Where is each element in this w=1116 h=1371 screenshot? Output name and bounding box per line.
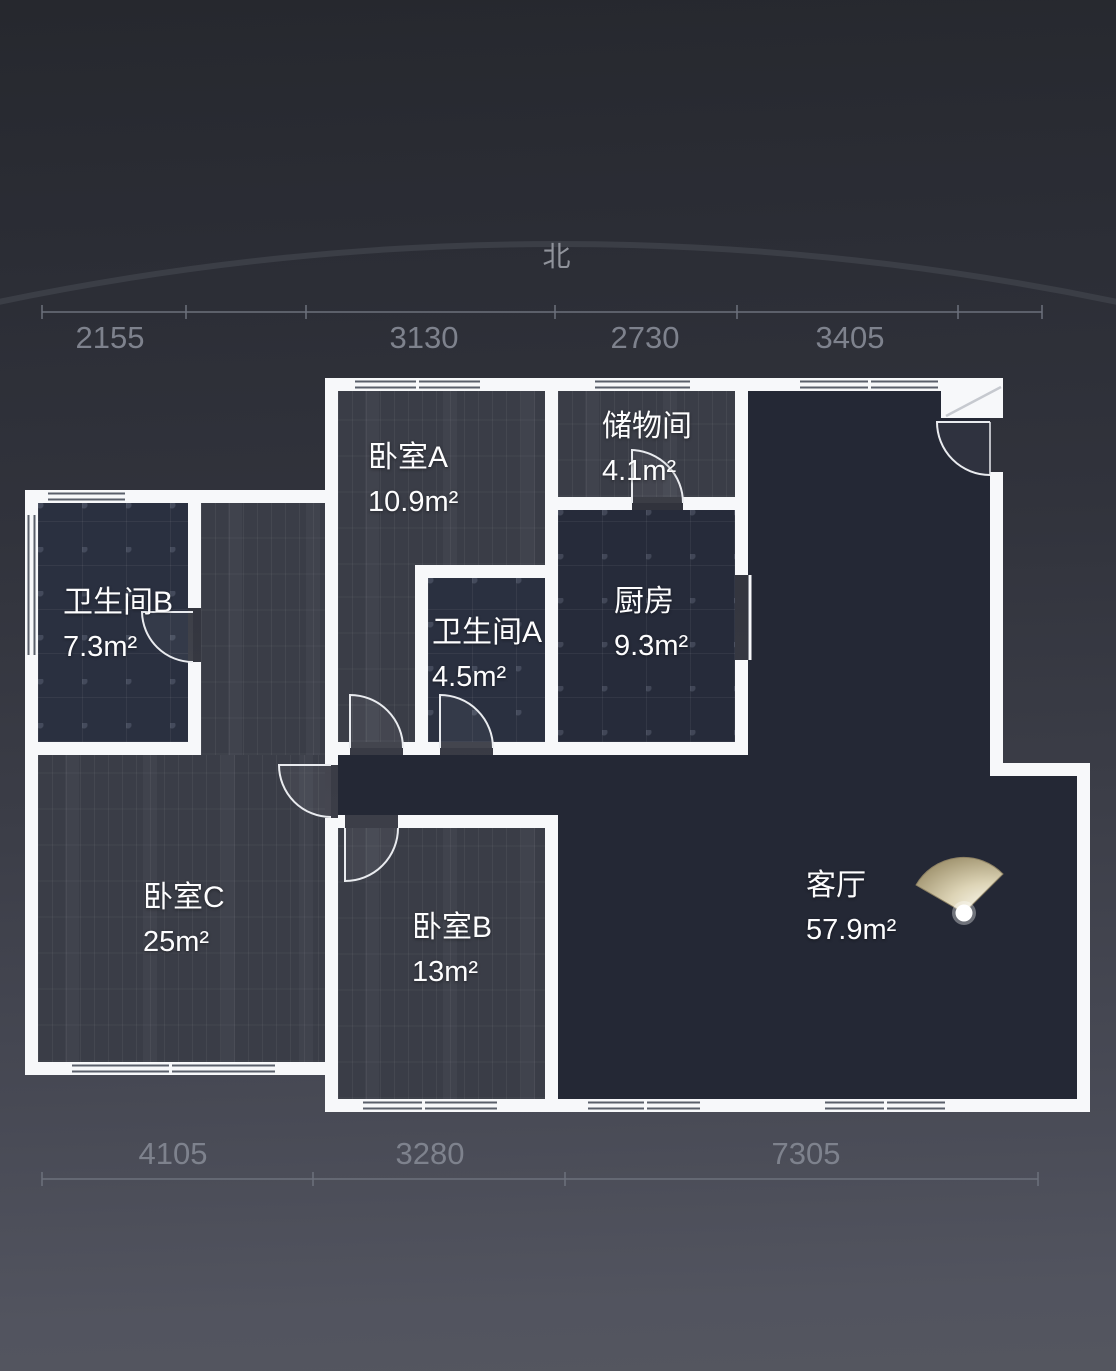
room-name: 卧室C [143, 876, 225, 920]
light-fan-icon [916, 857, 1003, 925]
room-name: 卫生间B [63, 581, 173, 625]
room-name: 客厅 [806, 864, 896, 908]
label-living-room: 客厅 57.9m² [806, 864, 896, 952]
door-bedroom-a [350, 695, 403, 748]
room-area: 4.1m² [602, 449, 692, 493]
door-bedroom-b [345, 828, 398, 881]
room-area: 57.9m² [806, 908, 896, 952]
room-area: 10.9m² [368, 480, 458, 524]
room-area: 25m² [143, 920, 225, 964]
room-name: 卧室B [412, 906, 492, 950]
label-storage: 储物间 4.1m² [602, 405, 692, 493]
label-bathroom-b: 卫生间B 7.3m² [63, 581, 173, 669]
door-entry [937, 422, 990, 475]
room-name: 卫生间A [432, 611, 542, 655]
dimension-line-bottom [42, 1172, 1038, 1186]
room-area: 9.3m² [614, 624, 688, 668]
room-name: 厨房 [614, 580, 688, 624]
dim-top-1: 2155 [76, 320, 145, 356]
label-bedroom-a: 卧室A 10.9m² [368, 436, 458, 524]
room-area: 4.5m² [432, 655, 542, 699]
dim-bottom-1: 4105 [139, 1136, 208, 1172]
dim-top-2: 3130 [390, 320, 459, 356]
room-name: 储物间 [602, 405, 692, 449]
door-bedroom-c [279, 765, 331, 817]
dim-bottom-3: 7305 [772, 1136, 841, 1172]
label-bedroom-b: 卧室B 13m² [412, 906, 492, 994]
label-bedroom-c: 卧室C 25m² [143, 876, 225, 964]
door-bathroom-a [440, 695, 493, 748]
dim-top-3: 2730 [611, 320, 680, 356]
dim-bottom-2: 3280 [396, 1136, 465, 1172]
label-kitchen: 厨房 9.3m² [614, 580, 688, 668]
room-area: 7.3m² [63, 625, 173, 669]
floorplan-screen: 北 [0, 0, 1116, 1371]
label-bathroom-a: 卫生间A 4.5m² [432, 611, 542, 699]
dim-top-4: 3405 [816, 320, 885, 356]
room-area: 13m² [412, 950, 492, 994]
entry-corner-chamfer [946, 387, 1001, 416]
room-name: 卧室A [368, 436, 458, 480]
dimension-line-top [42, 305, 1042, 319]
